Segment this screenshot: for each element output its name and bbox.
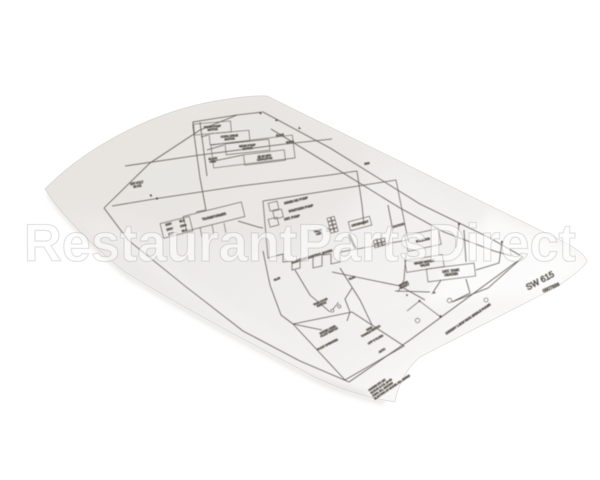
svg-text:RED: RED (210, 159, 216, 164)
svg-text:RestaurantPartsDirect: RestaurantPartsDirect (24, 214, 576, 272)
